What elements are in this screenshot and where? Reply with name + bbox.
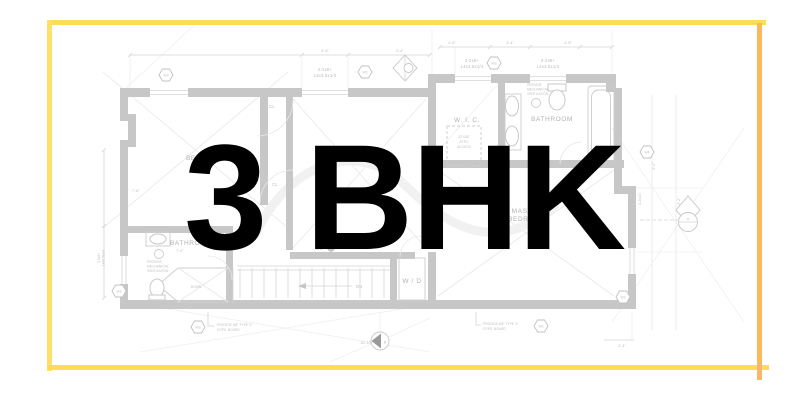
lintel-note: 2-2x8+ (318, 67, 332, 72)
window-marker-label: W3 (196, 326, 201, 330)
frame-border-right (757, 23, 762, 380)
listing-card: 4'-6" 2'-4" 4'-6" 3'-4" 4'-6" 7'-6" 7'-4… (0, 0, 800, 400)
dim-label: 2'-4" (618, 344, 626, 348)
master-bedroom-label: MASTER (512, 208, 543, 215)
lintel-note: L4x3.5x1/4 (314, 73, 337, 78)
dim-label: 7'-4" (176, 249, 184, 253)
window-marker-label: W3 (492, 62, 497, 66)
bathroom-bottom: PROVIDE MECHANICAL VENTILATION BATHROOM (146, 232, 232, 300)
vent-note: MECHANICAL (527, 88, 549, 92)
attic-access-note: ACCESS (457, 145, 471, 149)
washer-dryer-label: W / D (402, 278, 421, 285)
bathroom-top-label: BATHROOM (531, 116, 573, 123)
frame-border-top (47, 20, 766, 25)
window-marker-label: W3 (363, 71, 368, 75)
bedroom-label: BEDROOM (186, 155, 224, 162)
window-marker-label: W3 (164, 74, 169, 78)
dim-label: 4'-4" (652, 162, 656, 170)
dim-label: 2'-4" (396, 49, 404, 53)
vent-note: VENTILATION (147, 269, 169, 273)
lintel-note: 2-2x8+ (465, 58, 479, 63)
gyps-note: GYPS. BOARD (217, 328, 240, 332)
co-detector-label: CO (316, 246, 323, 251)
lintel-note: 2-2x8+ (541, 58, 555, 63)
gyps-note: PROVIDE 5/8" TYPE 'X' (217, 323, 253, 327)
frame-border-left (47, 20, 52, 371)
stair-direction-label: DN (356, 284, 362, 289)
window-marker-label: W3 (539, 325, 544, 329)
bathroom-top: PROVIDE MECHANICAL VENTILATION BATHROOM (505, 83, 614, 164)
down-arrow-icon (298, 283, 306, 289)
vent-note: VENTILATION (527, 92, 549, 96)
dim-label: 4'-6" (448, 41, 456, 45)
wic-label: W. I. C. (454, 117, 480, 124)
dim-label: 7'-6" (132, 189, 140, 193)
frame-border-bottom (47, 365, 769, 370)
bathroom-bottom-label: BATHROOM (170, 240, 212, 247)
section-marker-label: A (687, 217, 690, 221)
dim-label: 4'-6" (564, 41, 572, 45)
gyps-note: PROVIDE 5/8" TYPE 'X' (483, 322, 519, 326)
attic-access-note: 22"x28" (458, 135, 470, 139)
vent-note: PROVIDE (527, 83, 543, 87)
construction-lines (103, 20, 744, 362)
vent-note: MECHANICAL (147, 265, 169, 269)
gyps-note: GYPS. BOARD (483, 327, 506, 331)
stair-landing-label: DOWN (191, 285, 202, 289)
closet-label: CL (272, 182, 278, 187)
window-marker-label: W4 (645, 151, 650, 155)
floor-plan-image: 4'-6" 2'-4" 4'-6" 3'-4" 4'-6" 7'-6" 7'-4… (0, 0, 800, 400)
header-note-vertical: 2-2x8+ (97, 253, 101, 263)
lintel-note: L4x3.5x1/4 (537, 64, 560, 69)
washer-dryer-closet: W / D (399, 236, 425, 300)
window-marker-label: W3 (621, 296, 626, 300)
dim-label: 2'-2" (677, 197, 681, 205)
closet-label: CL (269, 104, 275, 109)
master-bedroom-label: BEDROOM (508, 216, 546, 223)
header-note-vertical: L4x3.5x1/4 (102, 250, 106, 266)
attic-access-note: ATTIC (459, 140, 469, 144)
lintel-note: L4x3.5x1/4 (461, 64, 484, 69)
dim-label: 4'-6" (321, 49, 329, 53)
vent-note: PROVIDE (147, 260, 163, 264)
section-marker-label: B (384, 341, 387, 345)
dim-label: 3'-4" (506, 41, 514, 45)
joist-label: 2-2x10 (638, 193, 642, 205)
walk-in-closet: W. I. C. 22"x28" ATTIC ACCESS (447, 117, 481, 166)
window-marker-label: W3 (117, 290, 122, 294)
co-detector-icon (328, 245, 335, 252)
